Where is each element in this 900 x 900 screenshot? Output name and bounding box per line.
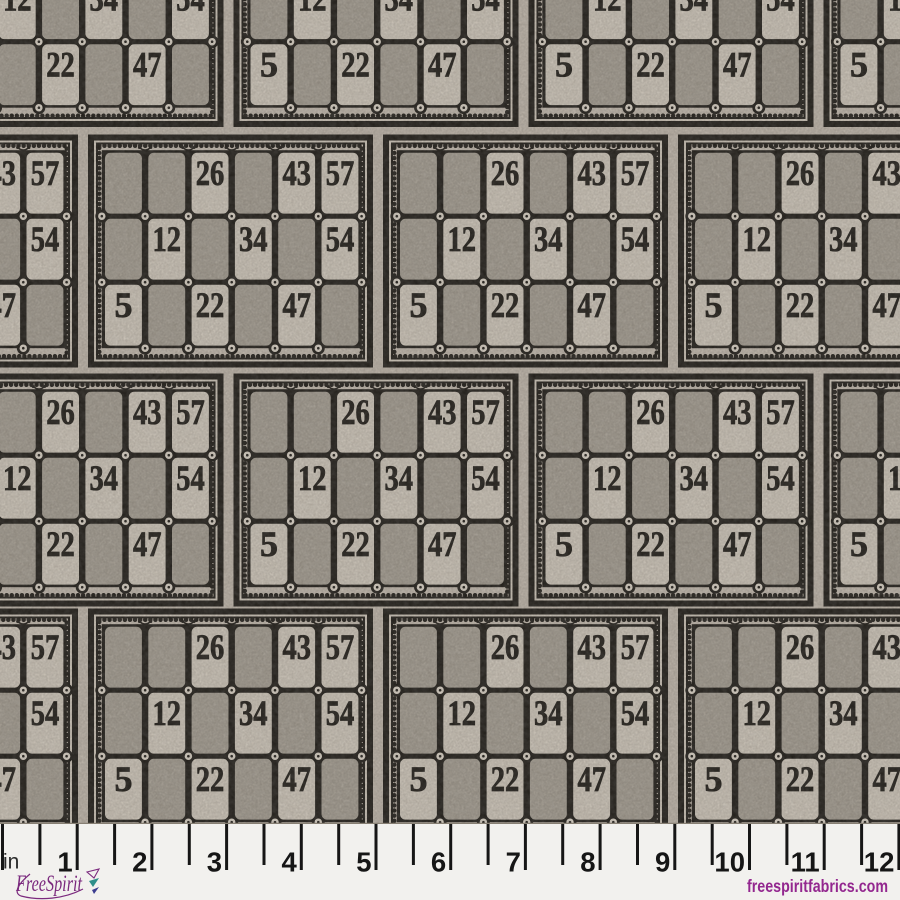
- svg-text:6: 6: [431, 847, 446, 878]
- svg-text:8: 8: [580, 847, 595, 878]
- svg-text:5: 5: [356, 847, 371, 878]
- svg-text:12: 12: [864, 847, 895, 878]
- svg-text:10: 10: [714, 847, 745, 878]
- svg-text:2: 2: [132, 847, 147, 878]
- svg-text:3: 3: [207, 847, 222, 878]
- svg-text:9: 9: [655, 847, 670, 878]
- svg-text:FreeSpirit: FreeSpirit: [15, 871, 82, 896]
- svg-text:4: 4: [282, 847, 298, 878]
- svg-text:7: 7: [506, 847, 521, 878]
- svg-text:freespiritfabrics.com: freespiritfabrics.com: [747, 876, 888, 896]
- svg-text:11: 11: [791, 847, 820, 878]
